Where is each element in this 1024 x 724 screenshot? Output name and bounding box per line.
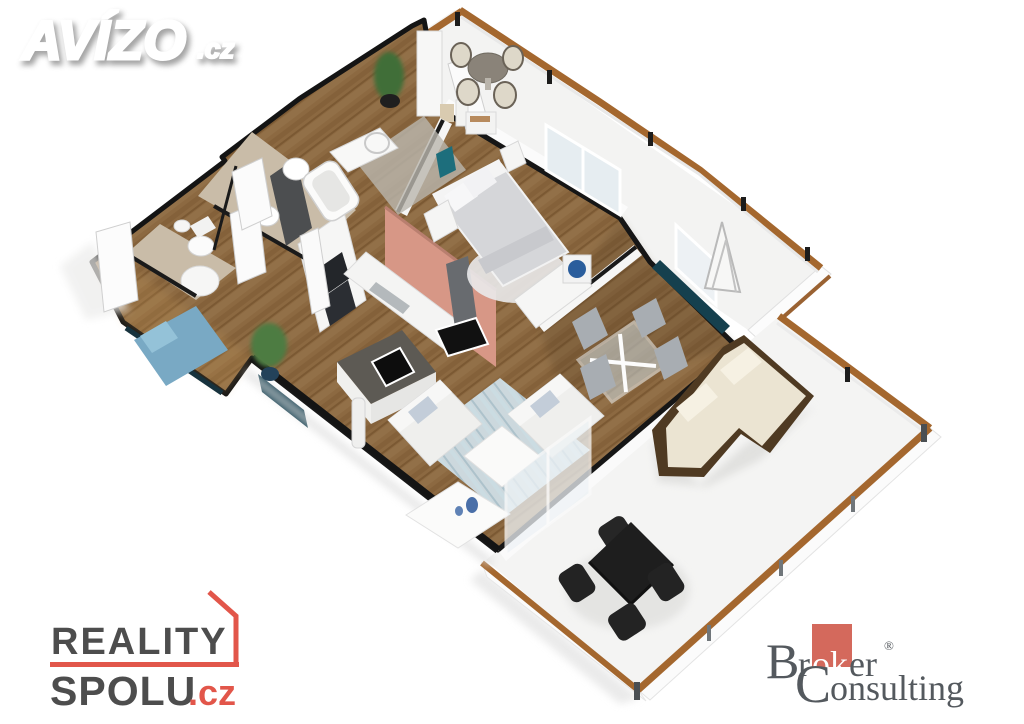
svg-text:onsulting: onsulting [830,668,964,708]
svg-text:®: ® [884,638,894,653]
svg-text:.cz: .cz [188,672,236,713]
svg-text:SPOLU: SPOLU [50,668,196,714]
svg-text:.cz: .cz [197,33,234,64]
svg-text:REALITY: REALITY [51,621,228,663]
svg-text:AVÍZO: AVÍZO [20,9,186,71]
svg-text:C: C [795,654,831,714]
